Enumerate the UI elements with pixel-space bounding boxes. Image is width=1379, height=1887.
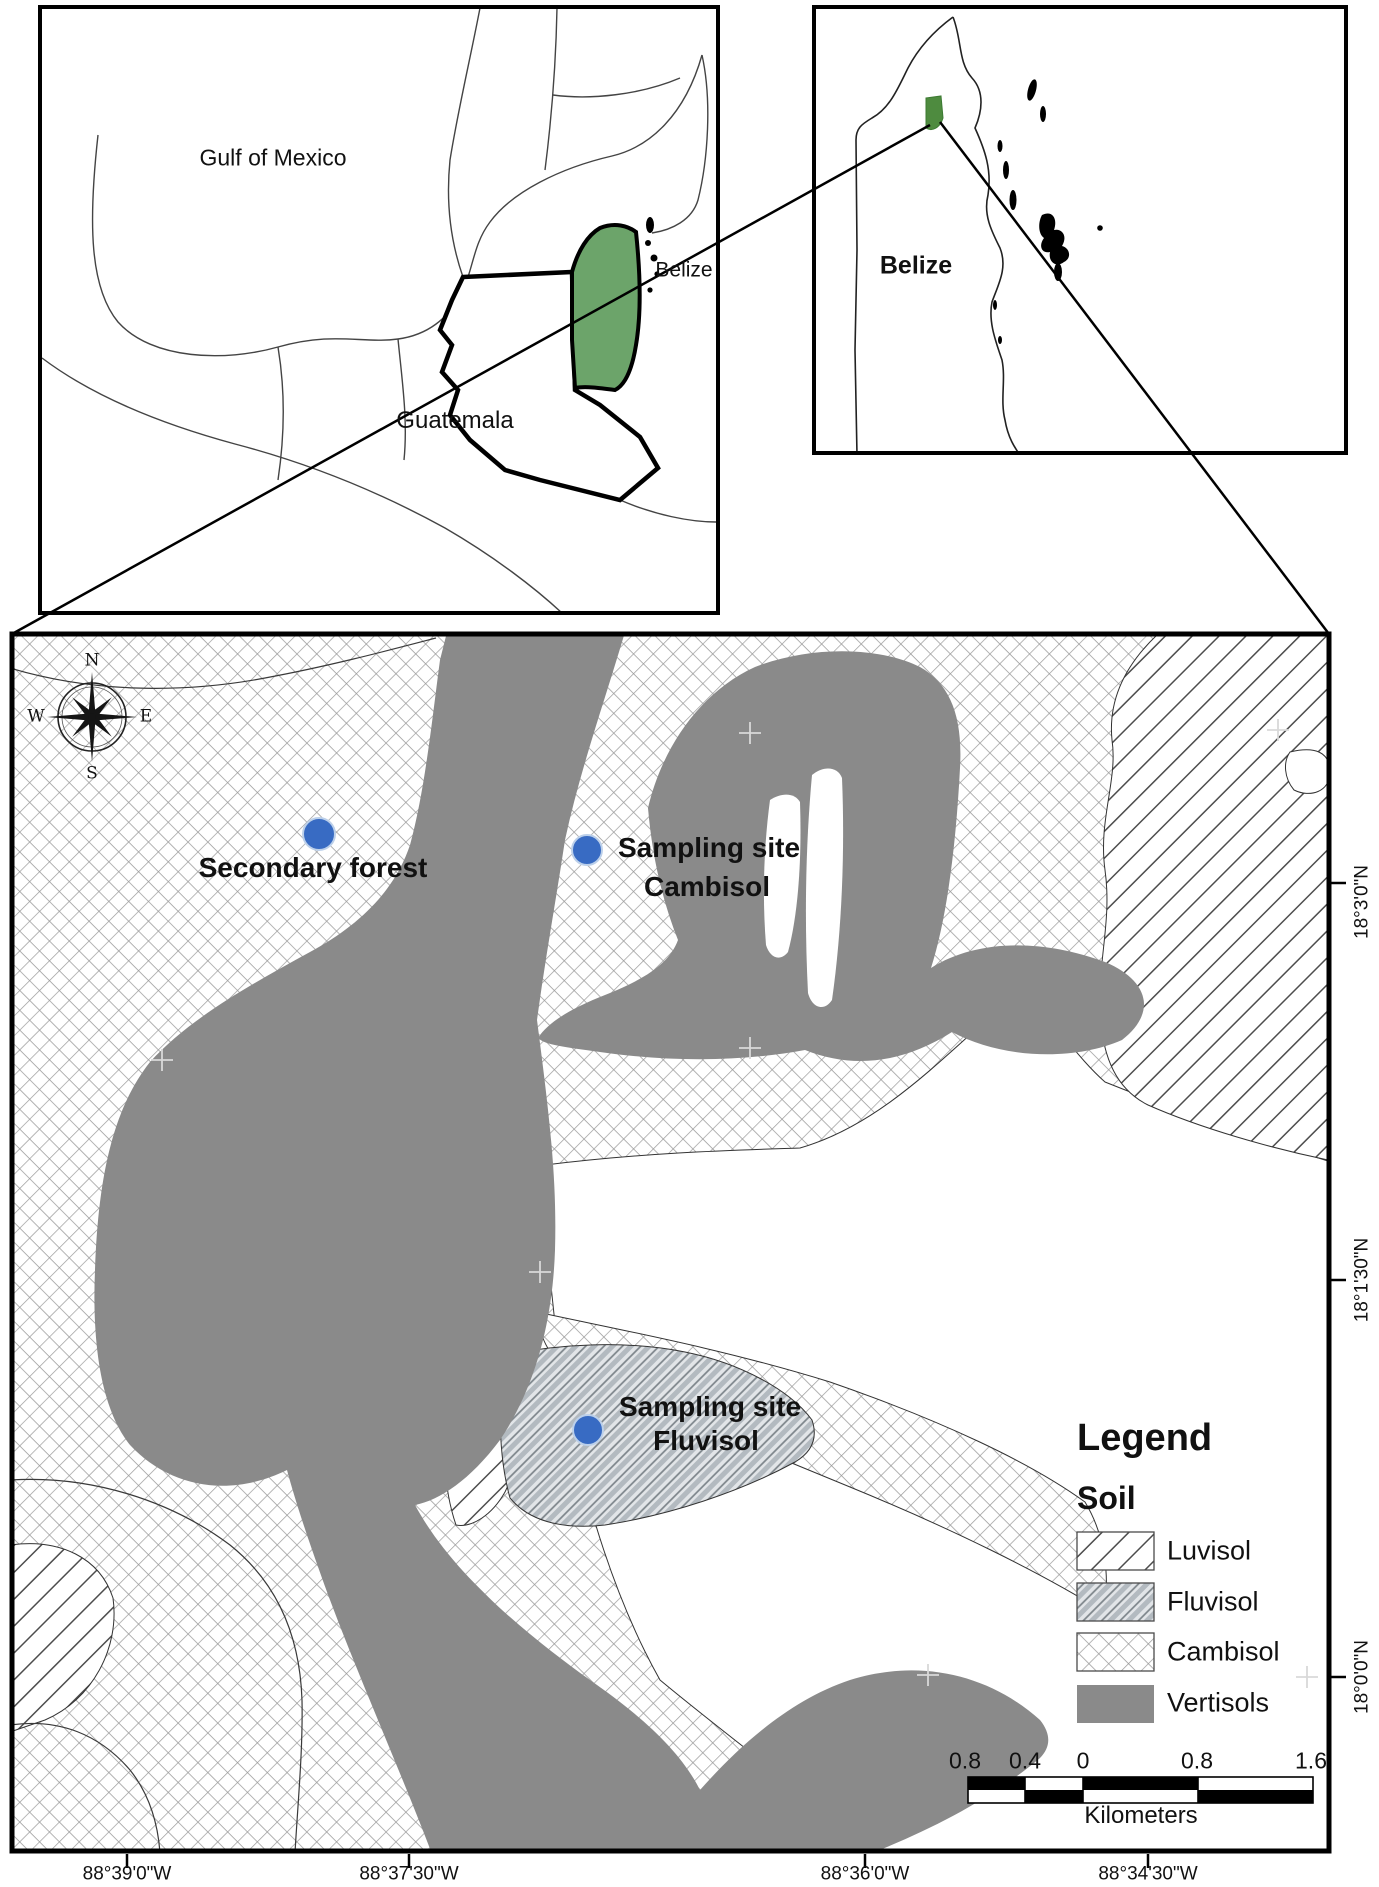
legend-item-fluvisol: Fluvisol bbox=[1167, 1589, 1259, 1616]
scalebar bbox=[968, 1777, 1313, 1803]
belize-label-small: Belize bbox=[655, 260, 712, 281]
legend-swatch-vertisols bbox=[1077, 1685, 1154, 1723]
inset-overview-region bbox=[40, 7, 718, 613]
scalebar-tick-1: 0.4 bbox=[1009, 1750, 1041, 1773]
secondary-forest-label: Secondary forest bbox=[199, 854, 428, 882]
lat-label-0: 18°3'0"N bbox=[1353, 865, 1372, 939]
compass-w-label: W bbox=[27, 709, 44, 726]
legend-swatch-fluvisol bbox=[1077, 1583, 1154, 1621]
legend-subtitle: Soil bbox=[1077, 1482, 1136, 1514]
lat-label-2: 18°0'0"N bbox=[1353, 1640, 1372, 1714]
gulf-of-mexico-label: Gulf of Mexico bbox=[200, 147, 347, 170]
guatemala-label: Guatemala bbox=[396, 409, 513, 433]
scalebar-tick-4: 1.6 bbox=[1295, 1750, 1327, 1773]
compass-n-label: N bbox=[85, 653, 100, 670]
legend-swatch-cambisol bbox=[1077, 1633, 1154, 1671]
lat-label-1: 18°1'30"N bbox=[1353, 1238, 1372, 1323]
belize-label-large: Belize bbox=[880, 254, 952, 279]
inset-belize-region bbox=[814, 7, 1346, 455]
figure-canvas: Gulf of Mexico Guatemala Belize Belize S… bbox=[0, 0, 1379, 1887]
compass-s-label: S bbox=[86, 766, 98, 783]
scalebar-tick-2: 0 bbox=[1077, 1750, 1090, 1773]
lon-label-0: 88°39'0"W bbox=[83, 1865, 172, 1884]
lon-label-2: 88°36'0"W bbox=[821, 1865, 910, 1884]
compass-e-label: E bbox=[140, 709, 152, 726]
belize-highlight-shape bbox=[572, 225, 640, 390]
scalebar-unit-label: Kilometers bbox=[1084, 1804, 1197, 1828]
marker-secondary-forest bbox=[303, 818, 335, 850]
soil-region-luvisol bbox=[1100, 634, 1328, 1160]
marker-cambisol-site bbox=[572, 835, 602, 865]
legend-item-vertisols: Vertisols bbox=[1167, 1690, 1269, 1717]
legend-item-cambisol: Cambisol bbox=[1167, 1639, 1280, 1666]
marker-fluvisol-site bbox=[573, 1415, 603, 1445]
legend-title: Legend bbox=[1077, 1419, 1212, 1457]
legend-item-luvisol: Luvisol bbox=[1167, 1538, 1251, 1565]
lon-label-1: 88°37'30"W bbox=[359, 1865, 458, 1884]
cambisol-site-label-line2: Cambisol bbox=[644, 873, 770, 901]
cambisol-site-label-line1: Sampling site bbox=[618, 834, 800, 862]
fluvisol-site-label-line2: Fluvisol bbox=[653, 1427, 759, 1455]
scalebar-tick-3: 0.8 bbox=[1181, 1750, 1213, 1773]
scalebar-tick-0: 0.8 bbox=[949, 1750, 981, 1773]
white-notch bbox=[1285, 750, 1330, 794]
lon-label-3: 88°34'30"W bbox=[1098, 1865, 1197, 1884]
fluvisol-site-label-line1: Sampling site bbox=[619, 1393, 801, 1421]
legend-swatch-luvisol bbox=[1077, 1532, 1154, 1570]
